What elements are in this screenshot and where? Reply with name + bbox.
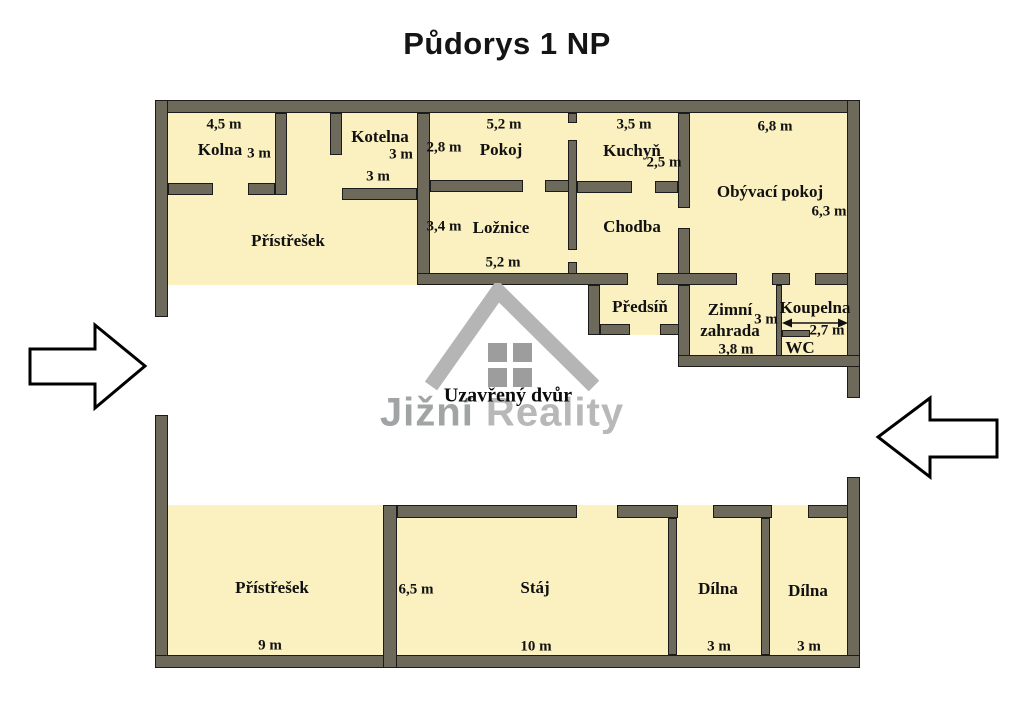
- wall: [397, 505, 577, 518]
- logo-window-pane: [488, 343, 507, 362]
- room-label-staj: Stáj: [520, 578, 549, 598]
- room-label-pokoj: Pokoj: [480, 140, 523, 160]
- wall: [617, 505, 678, 518]
- room-label-dilna-2: Dílna: [788, 581, 828, 601]
- dim-kuchyn-side: 2,5 m: [647, 155, 682, 172]
- dim-staj-side: 6,5 m: [399, 582, 434, 599]
- room-label-pristresek-bottom: Přístřešek: [235, 578, 309, 598]
- dim-kotelna-side: 3 m: [389, 147, 413, 164]
- wall: [600, 324, 630, 335]
- wall: [713, 505, 772, 518]
- wall: [847, 477, 860, 668]
- wall: [815, 273, 848, 285]
- wall: [772, 273, 790, 285]
- room-label-chodba: Chodba: [603, 217, 661, 237]
- wall: [155, 655, 860, 668]
- wall: [155, 415, 168, 668]
- dim-staj-bottom: 10 m: [520, 639, 551, 656]
- wall: [657, 273, 737, 285]
- courtyard-label: Uzavřený dvůr: [444, 385, 572, 408]
- wall: [568, 113, 577, 123]
- wall: [655, 181, 678, 193]
- wall: [761, 518, 770, 655]
- wall: [782, 330, 810, 337]
- dim-koupelna-width: 2,7 m: [810, 323, 845, 340]
- dim-kotelna-bottom: 3 m: [366, 169, 390, 186]
- dim-dilna-2-bottom: 3 m: [797, 639, 821, 656]
- logo-window-pane: [513, 343, 532, 362]
- entrance-arrow-right-icon: [873, 393, 1003, 483]
- wall: [678, 355, 860, 367]
- house-roof-logo: [425, 283, 600, 393]
- wall: [248, 183, 275, 195]
- dim-kolna-top: 4,5 m: [207, 117, 242, 134]
- dim-loznice-bottom: 5,2 m: [486, 255, 521, 272]
- dim-pokoj-side: 2,8 m: [427, 140, 462, 157]
- wall: [275, 113, 287, 195]
- room-label-kotelna: Kotelna: [351, 127, 409, 147]
- room-label-predsin: Předsíň: [612, 297, 668, 317]
- dim-obyvaci-top: 6,8 m: [758, 119, 793, 136]
- dim-dilna-1-bottom: 3 m: [707, 639, 731, 656]
- dim-zimni-bottom: 3,8 m: [719, 342, 754, 359]
- wall: [847, 100, 860, 398]
- room-label-obyvaci-pokoj: Obývací pokoj: [717, 182, 823, 202]
- floor-plan: Půdorys 1 NP Jižní Reality Uzavřený dvůr: [0, 0, 1024, 717]
- wall: [577, 181, 632, 193]
- dim-zimni-side: 3 m: [754, 312, 778, 329]
- wall: [155, 100, 860, 113]
- room-label-kolna: Kolna: [198, 140, 242, 160]
- roof-icon: [431, 291, 594, 386]
- room-label-dilna-1: Dílna: [698, 579, 738, 599]
- wall: [545, 180, 570, 192]
- room-label-loznice: Ložnice: [473, 218, 530, 238]
- room-label-pristresek-top: Přístřešek: [251, 231, 325, 251]
- wall: [568, 140, 577, 250]
- room-label-wc: WC: [785, 338, 814, 358]
- dim-obyvaci-side: 6,3 m: [812, 204, 847, 221]
- wall: [668, 518, 677, 655]
- wall: [168, 183, 213, 195]
- dim-kolna-side: 3 m: [247, 146, 271, 163]
- wall: [383, 505, 397, 668]
- plan-title: Půdorys 1 NP: [403, 26, 611, 62]
- wall: [342, 188, 417, 200]
- dim-loznice-side: 3,4 m: [427, 219, 462, 236]
- dim-pokoj-top: 5,2 m: [487, 117, 522, 134]
- wall: [155, 100, 168, 317]
- dim-pristresek-bottom: 9 m: [258, 638, 282, 655]
- wall: [808, 505, 848, 518]
- dim-kuchyn-top: 3,5 m: [617, 117, 652, 134]
- wall: [330, 113, 342, 155]
- wall: [430, 180, 523, 192]
- entrance-arrow-left-icon: [25, 320, 150, 415]
